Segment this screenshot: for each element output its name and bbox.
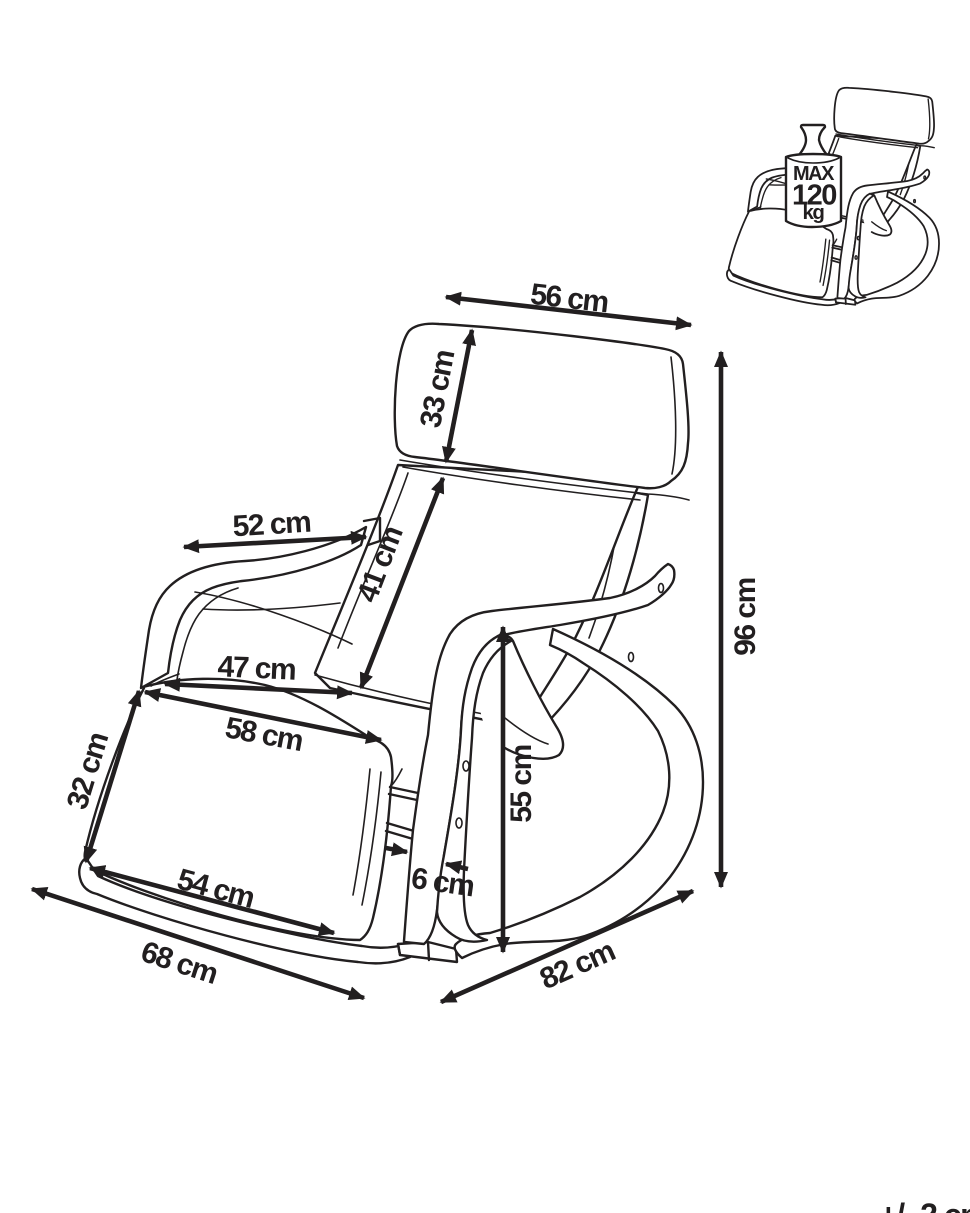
svg-text:kg: kg xyxy=(803,201,825,224)
svg-text:68 cm: 68 cm xyxy=(137,935,221,990)
svg-text:55 cm: 55 cm xyxy=(505,745,538,823)
svg-text:96 cm: 96 cm xyxy=(729,578,762,656)
svg-text:47 cm: 47 cm xyxy=(217,650,296,686)
svg-text:56 cm: 56 cm xyxy=(529,278,610,320)
svg-text:52 cm: 52 cm xyxy=(232,506,311,544)
svg-text:+/- 2 cm: +/- 2 cm xyxy=(879,1197,970,1213)
